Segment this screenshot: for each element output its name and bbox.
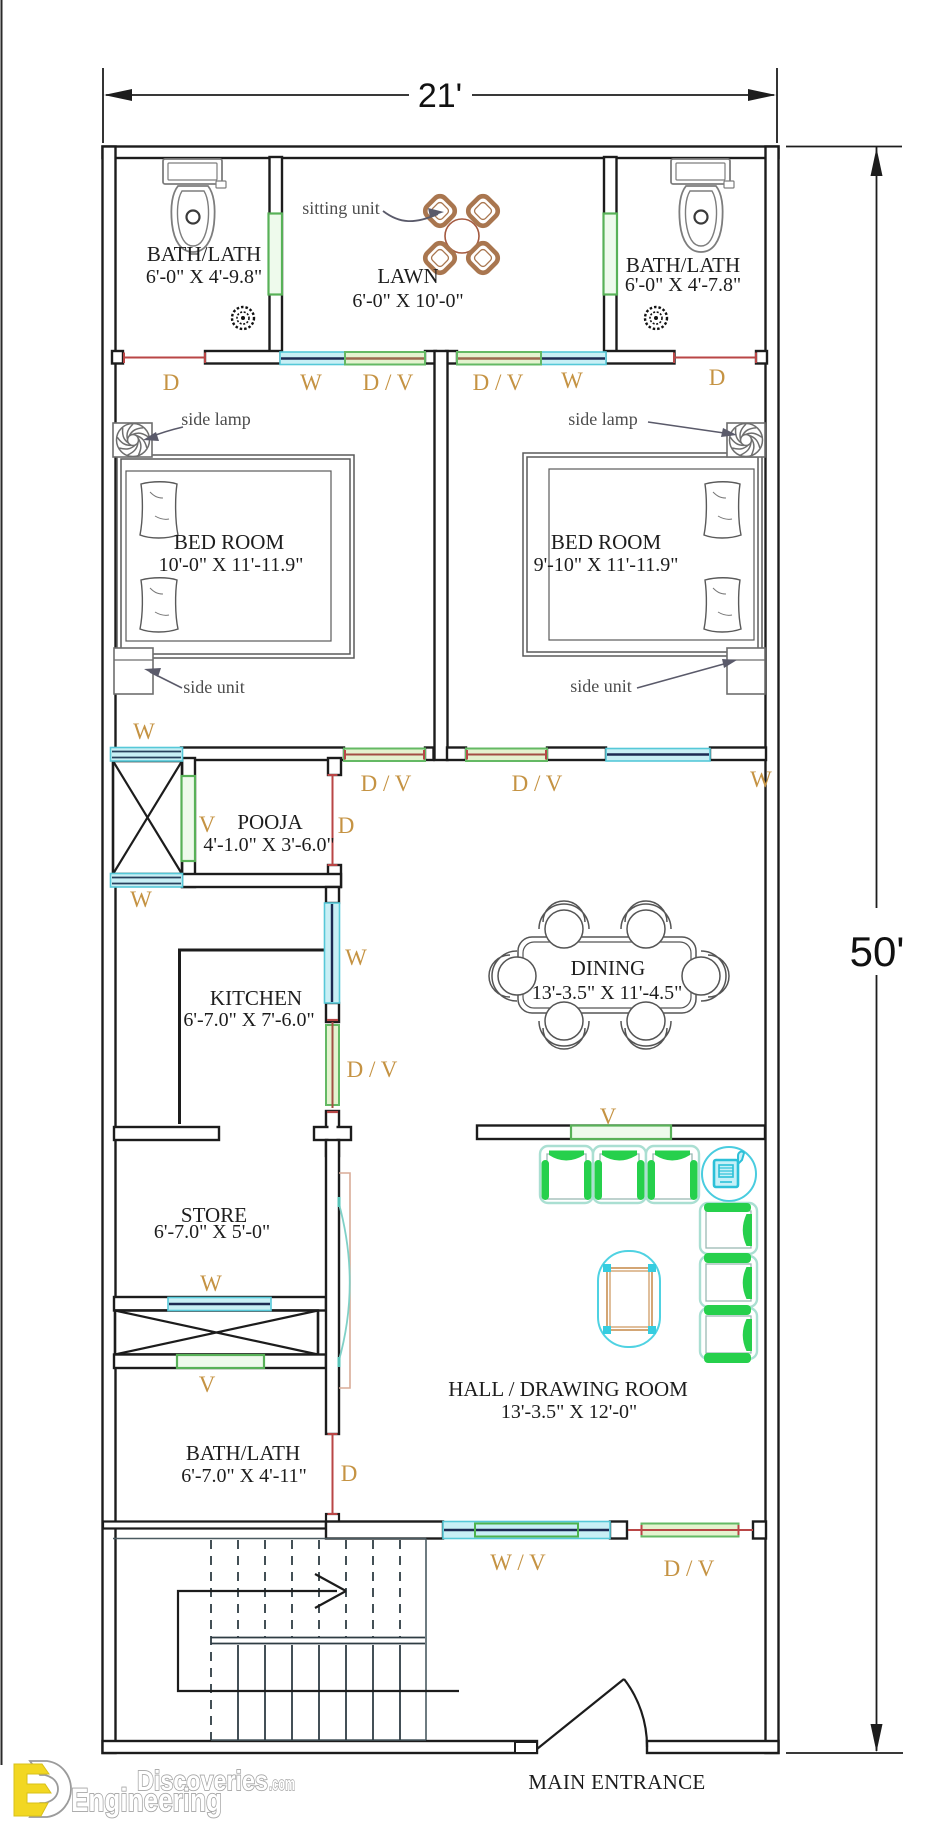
svg-text:side unit: side unit: [570, 676, 632, 696]
svg-text:side lamp: side lamp: [181, 409, 251, 429]
svg-text:D: D: [163, 370, 180, 395]
svg-text:6'-0" X 4'-9.8": 6'-0" X 4'-9.8": [146, 266, 262, 288]
svg-text:BATH/LATH: BATH/LATH: [147, 242, 261, 266]
svg-text:W / V: W / V: [490, 1550, 546, 1575]
svg-text:10'-0" X 11'-11.9": 10'-0" X 11'-11.9": [159, 554, 304, 576]
svg-text:sitting unit: sitting unit: [302, 198, 380, 218]
svg-text:HALL / DRAWING ROOM: HALL / DRAWING ROOM: [448, 1377, 688, 1401]
svg-text:D / V: D / V: [347, 1057, 398, 1082]
svg-text:9'-10" X 11'-11.9": 9'-10" X 11'-11.9": [534, 554, 679, 576]
svg-text:W: W: [750, 767, 772, 792]
svg-text:BED ROOM: BED ROOM: [551, 530, 662, 554]
svg-text:MAIN ENTRANCE: MAIN ENTRANCE: [528, 1770, 705, 1794]
svg-text:W: W: [345, 945, 367, 970]
svg-text:Engineering: Engineering: [71, 1782, 222, 1818]
svg-text:.com: .com: [269, 1774, 295, 1794]
svg-text:V: V: [600, 1104, 617, 1129]
svg-text:6'-7.0" X 7'-6.0": 6'-7.0" X 7'-6.0": [183, 1009, 314, 1031]
svg-text:D / V: D / V: [512, 771, 563, 796]
svg-text:side lamp: side lamp: [568, 409, 638, 429]
svg-text:D: D: [341, 1461, 358, 1486]
svg-text:BATH/LATH: BATH/LATH: [186, 1441, 300, 1465]
svg-text:DINING: DINING: [571, 956, 646, 980]
svg-text:D / V: D / V: [363, 370, 414, 395]
svg-text:6'-0" X 4'-7.8": 6'-0" X 4'-7.8": [625, 274, 741, 296]
svg-text:6'-7.0" X 5'-0": 6'-7.0" X 5'-0": [154, 1221, 270, 1243]
svg-text:W: W: [133, 719, 155, 744]
svg-text:side unit: side unit: [183, 677, 245, 697]
svg-text:KITCHEN: KITCHEN: [210, 986, 302, 1010]
svg-text:W: W: [200, 1271, 222, 1296]
svg-text:D / V: D / V: [473, 370, 524, 395]
svg-text:D / V: D / V: [664, 1556, 715, 1581]
svg-text:4'-1.0" X 3'-6.0": 4'-1.0" X 3'-6.0": [203, 834, 334, 856]
svg-text:BED ROOM: BED ROOM: [174, 530, 285, 554]
svg-text:21': 21': [418, 77, 462, 115]
svg-text:13'-3.5" X 12'-0": 13'-3.5" X 12'-0": [501, 1401, 637, 1423]
svg-text:6'-7.0" X 4'-11": 6'-7.0" X 4'-11": [181, 1465, 307, 1487]
svg-text:6'-0" X 10'-0": 6'-0" X 10'-0": [352, 290, 463, 312]
svg-text:50': 50': [850, 928, 905, 975]
svg-text:D: D: [338, 813, 355, 838]
svg-text:W: W: [300, 370, 322, 395]
svg-text:POOJA: POOJA: [237, 810, 303, 834]
svg-text:W: W: [130, 887, 152, 912]
svg-text:13'-3.5" X 11'-4.5": 13'-3.5" X 11'-4.5": [532, 982, 683, 1004]
svg-text:D / V: D / V: [361, 771, 412, 796]
svg-text:W: W: [561, 368, 583, 393]
svg-text:LAWN: LAWN: [377, 264, 438, 288]
svg-text:D: D: [709, 365, 726, 390]
svg-text:V: V: [199, 1372, 216, 1397]
